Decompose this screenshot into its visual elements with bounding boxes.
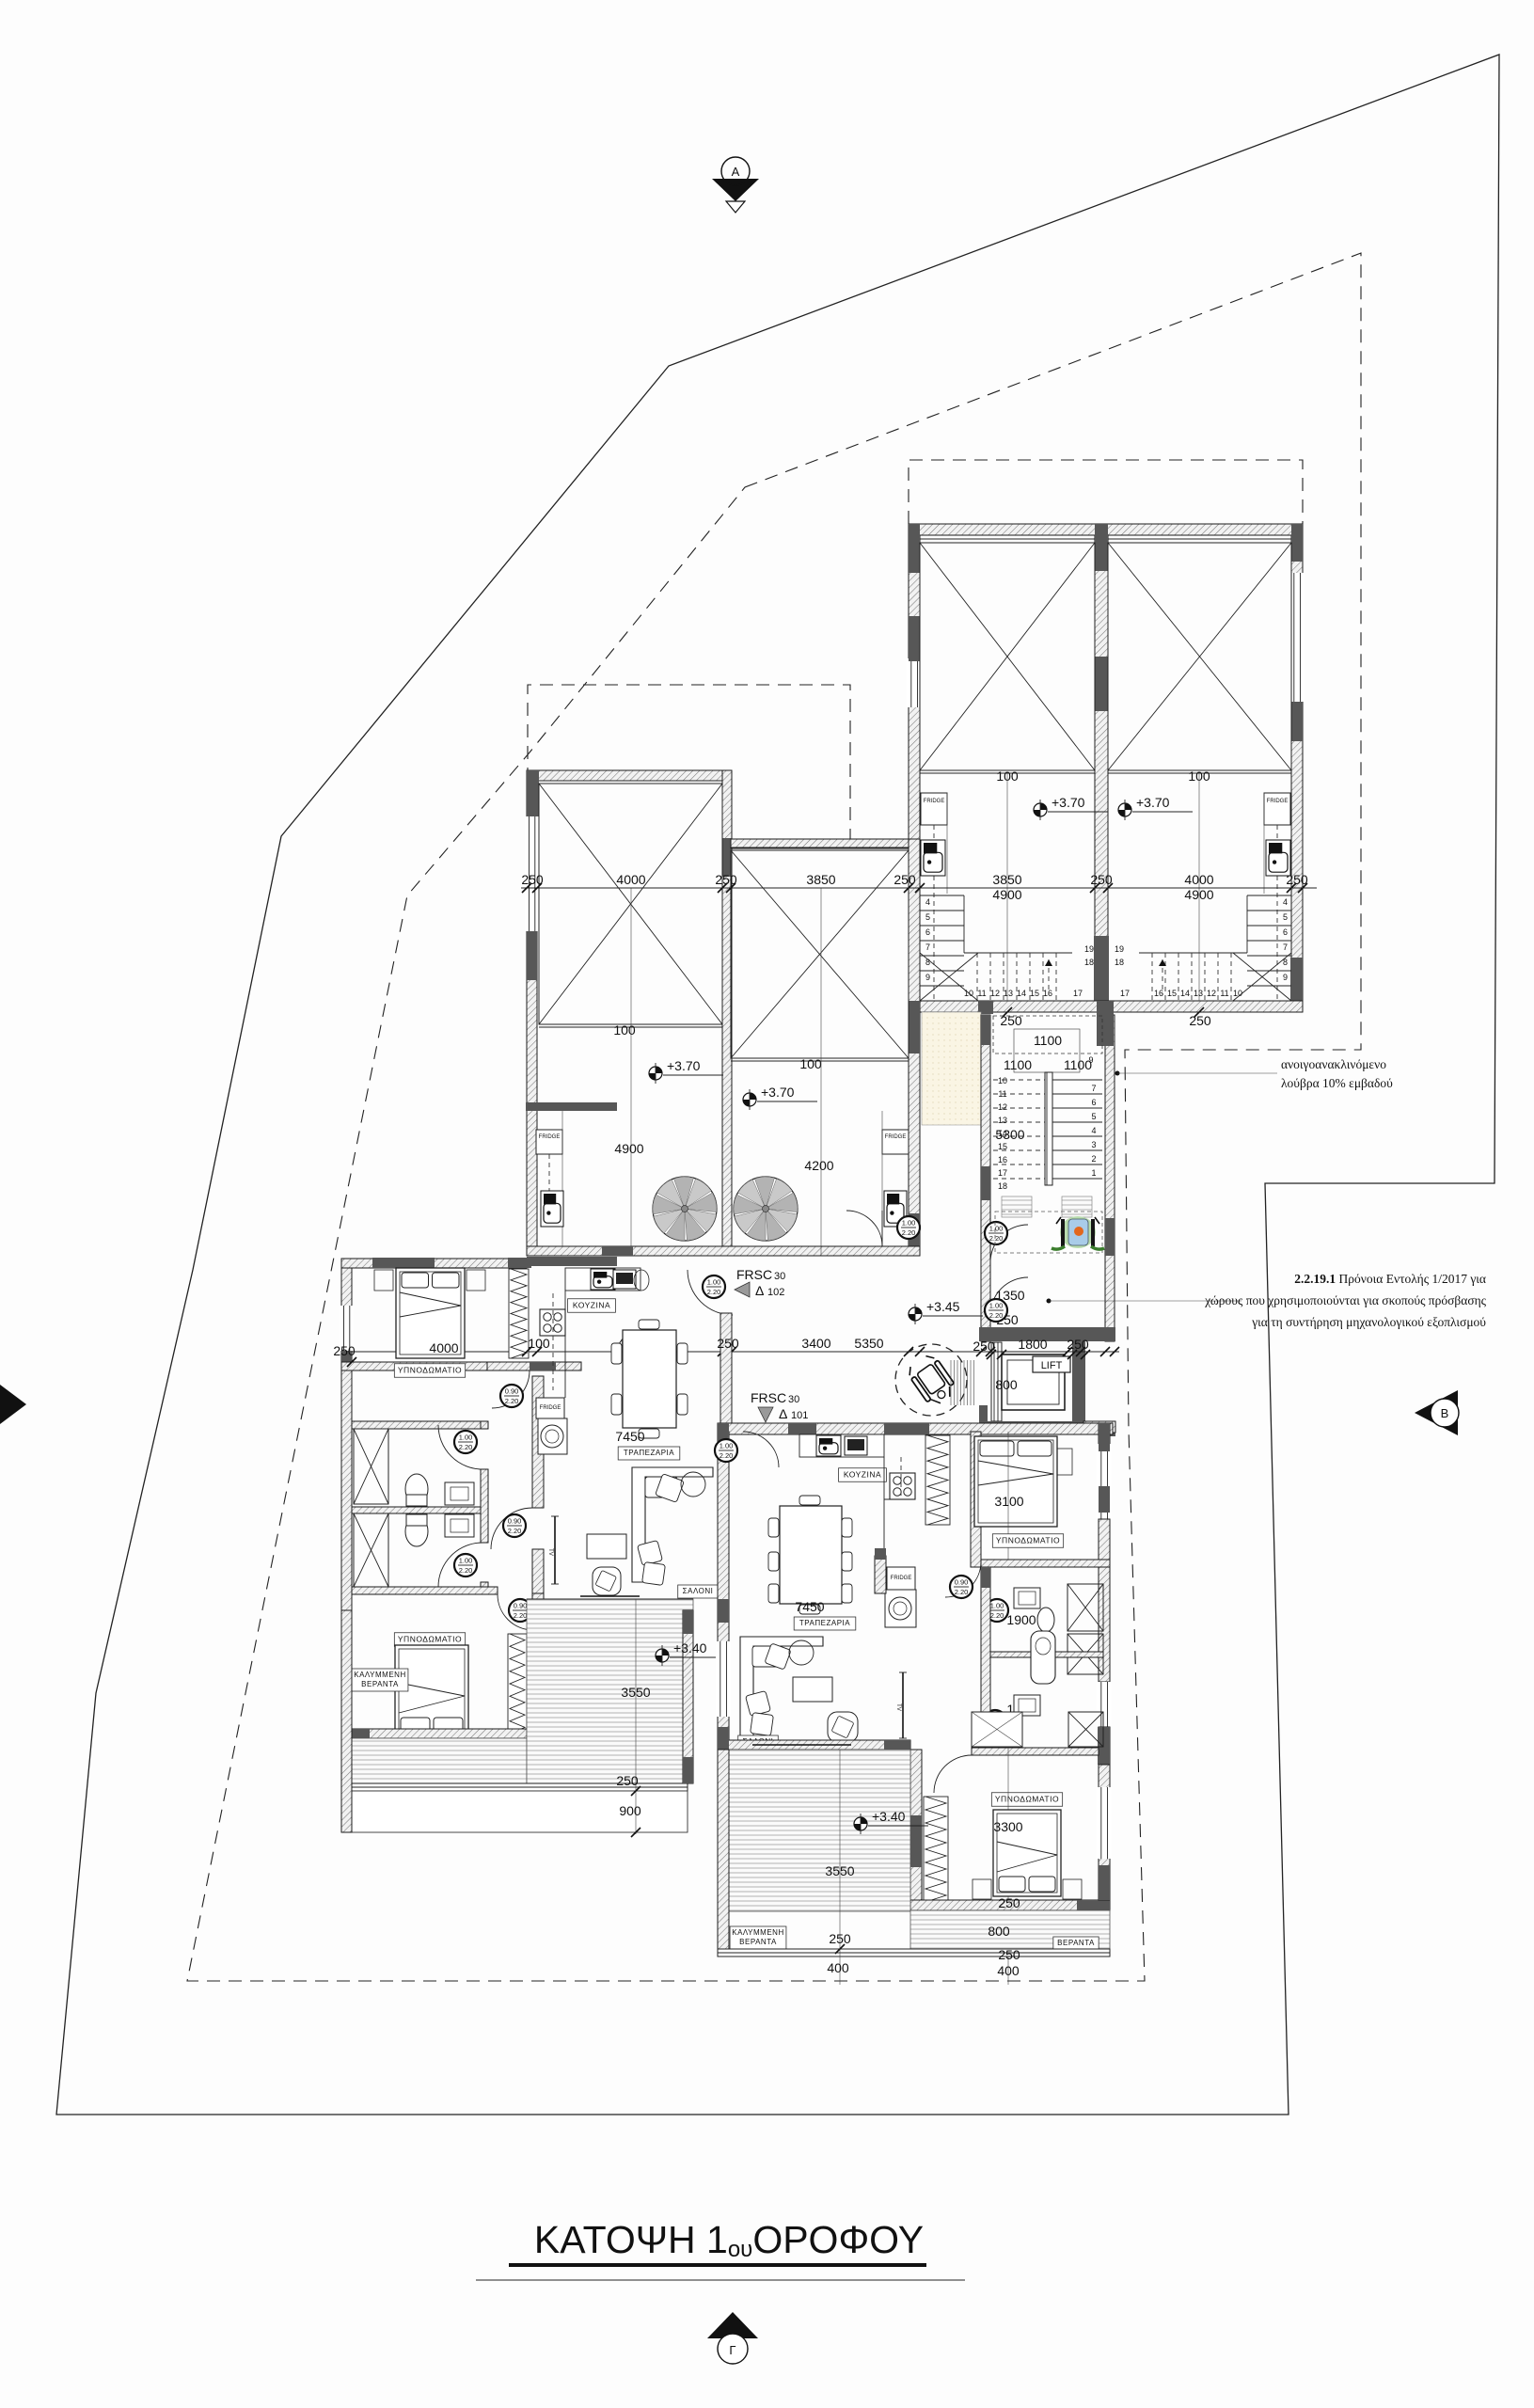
svg-text:15: 15 — [998, 1142, 1007, 1151]
svg-text:4: 4 — [1283, 897, 1288, 907]
svg-text:3: 3 — [1091, 1140, 1096, 1149]
svg-text:6: 6 — [1091, 1098, 1096, 1107]
svg-text:900: 900 — [619, 1803, 641, 1818]
svg-text:7450: 7450 — [795, 1599, 824, 1614]
svg-text:1.00: 1.00 — [990, 1602, 1004, 1610]
svg-text:+3.45: +3.45 — [926, 1299, 960, 1314]
svg-text:250: 250 — [1090, 872, 1113, 887]
svg-text:5300: 5300 — [995, 1127, 1024, 1142]
svg-text:7: 7 — [1091, 1084, 1096, 1093]
svg-text:2.20: 2.20 — [459, 1566, 473, 1575]
svg-text:ΥΠΝΟΔΩΜΑΤΙΟ: ΥΠΝΟΔΩΜΑΤΙΟ — [398, 1365, 462, 1374]
svg-text:4200: 4200 — [804, 1158, 833, 1173]
svg-text:FRIDGE: FRIDGE — [885, 1134, 907, 1140]
svg-text:Δ: Δ — [779, 1406, 787, 1421]
svg-text:100: 100 — [613, 1022, 636, 1038]
svg-text:250: 250 — [717, 1336, 739, 1351]
svg-text:ΚΟΥΖΙΝΑ: ΚΟΥΖΙΝΑ — [844, 1469, 881, 1479]
svg-text:0.90: 0.90 — [514, 1602, 528, 1610]
svg-text:250: 250 — [894, 872, 916, 887]
svg-text:ΥΠΝΟΔΩΜΑΤΙΟ: ΥΠΝΟΔΩΜΑΤΙΟ — [995, 1794, 1059, 1803]
svg-text:FRIDGE: FRIDGE — [1267, 799, 1289, 804]
svg-text:λούβρα 10% εμβαδού: λούβρα 10% εμβαδού — [1281, 1076, 1393, 1090]
svg-text:30: 30 — [774, 1271, 785, 1282]
svg-text:16: 16 — [1043, 989, 1052, 998]
svg-text:A: A — [732, 165, 740, 179]
svg-text:FRSC: FRSC — [751, 1390, 786, 1405]
svg-text:1100: 1100 — [1034, 1033, 1062, 1048]
svg-text:2.20: 2.20 — [902, 1228, 916, 1237]
svg-text:Δ: Δ — [755, 1283, 764, 1298]
svg-text:1100: 1100 — [1004, 1057, 1032, 1072]
svg-text:12: 12 — [998, 1102, 1007, 1112]
svg-text:17: 17 — [998, 1168, 1007, 1178]
svg-text:9: 9 — [1088, 1055, 1093, 1065]
svg-text:250: 250 — [715, 872, 737, 887]
svg-text:4: 4 — [1091, 1126, 1096, 1135]
svg-text:2.20: 2.20 — [990, 1611, 1004, 1620]
svg-text:800: 800 — [995, 1377, 1018, 1392]
svg-text:100: 100 — [528, 1336, 550, 1351]
svg-text:+3.70: +3.70 — [761, 1085, 795, 1100]
svg-text:2: 2 — [1091, 1154, 1096, 1164]
svg-text:4000: 4000 — [1184, 872, 1213, 887]
svg-text:2.20: 2.20 — [459, 1443, 473, 1451]
svg-text:ΚΟΥΖΙΝΑ: ΚΟΥΖΙΝΑ — [573, 1300, 610, 1309]
svg-text:LIFT: LIFT — [1041, 1360, 1063, 1371]
svg-text:5: 5 — [1283, 912, 1288, 922]
svg-text:17: 17 — [1073, 989, 1083, 998]
svg-text:100: 100 — [799, 1056, 822, 1071]
svg-text:4900: 4900 — [992, 887, 1021, 902]
svg-text:Γ: Γ — [729, 2343, 735, 2357]
svg-text:11: 11 — [977, 989, 986, 998]
svg-text:6: 6 — [1283, 927, 1288, 937]
svg-text:3850: 3850 — [806, 872, 835, 887]
svg-text:13: 13 — [998, 1116, 1007, 1125]
svg-text:5350: 5350 — [854, 1336, 883, 1351]
svg-text:14: 14 — [1017, 989, 1026, 998]
svg-text:250: 250 — [1189, 1013, 1211, 1028]
svg-text:2.20: 2.20 — [514, 1611, 528, 1620]
svg-text:ΒΕΡΑΝΤΑ: ΒΕΡΑΝΤΑ — [361, 1680, 399, 1688]
svg-text:11: 11 — [1220, 989, 1228, 998]
svg-text:2.20: 2.20 — [505, 1397, 519, 1405]
svg-text:3550: 3550 — [825, 1863, 854, 1878]
svg-text:17: 17 — [1120, 989, 1130, 998]
svg-text:FRIDGE: FRIDGE — [924, 799, 945, 804]
svg-text:1350: 1350 — [995, 1288, 1024, 1303]
svg-text:ΣΑΛΟΝΙ: ΣΑΛΟΝΙ — [683, 1587, 714, 1595]
svg-text:TV: TV — [895, 1703, 901, 1711]
svg-text:1: 1 — [1091, 1168, 1096, 1178]
svg-text:ΒΕΡΑΝΤΑ: ΒΕΡΑΝΤΑ — [1057, 1939, 1095, 1947]
svg-text:250: 250 — [616, 1773, 639, 1788]
svg-text:ΥΠΝΟΔΩΜΑΤΙΟ: ΥΠΝΟΔΩΜΑΤΙΟ — [398, 1634, 462, 1643]
svg-text:1.00: 1.00 — [459, 1557, 473, 1565]
svg-text:+3.70: +3.70 — [1136, 795, 1170, 810]
svg-text:ΥΠΝΟΔΩΜΑΤΙΟ: ΥΠΝΟΔΩΜΑΤΙΟ — [996, 1535, 1060, 1545]
svg-text:800: 800 — [988, 1924, 1010, 1939]
svg-text:2.20: 2.20 — [508, 1527, 522, 1535]
svg-text:3850: 3850 — [992, 872, 1021, 887]
svg-text:4000: 4000 — [429, 1340, 458, 1355]
svg-text:ανοιγοανακλινόμενο: ανοιγοανακλινόμενο — [1281, 1057, 1386, 1071]
svg-text:5: 5 — [1091, 1112, 1096, 1121]
svg-text:16: 16 — [1154, 989, 1163, 998]
svg-text:13: 13 — [1004, 989, 1013, 998]
svg-text:για τη συντήρηση μηχανολογικο: για τη συντήρηση μηχανολογικού εξοπλισμο… — [1251, 1315, 1486, 1329]
svg-text:0.90: 0.90 — [508, 1517, 522, 1526]
svg-text:4900: 4900 — [1184, 887, 1213, 902]
svg-text:250: 250 — [829, 1931, 851, 1946]
svg-text:7: 7 — [1283, 943, 1288, 952]
svg-text:3100: 3100 — [994, 1494, 1023, 1509]
svg-text:3550: 3550 — [621, 1685, 650, 1700]
svg-text:1.00: 1.00 — [707, 1278, 721, 1287]
svg-text:2.20: 2.20 — [989, 1234, 1004, 1243]
svg-text:3400: 3400 — [801, 1336, 830, 1351]
svg-text:7450: 7450 — [615, 1429, 644, 1444]
svg-text:5: 5 — [925, 912, 930, 922]
svg-text:19: 19 — [1115, 944, 1124, 954]
svg-text:250: 250 — [521, 872, 544, 887]
svg-text:101: 101 — [791, 1410, 808, 1421]
svg-text:30: 30 — [788, 1394, 799, 1405]
svg-text:7: 7 — [925, 943, 930, 952]
svg-text:ΤΡΑΠΕΖΑΡΙΑ: ΤΡΑΠΕΖΑΡΙΑ — [799, 1619, 850, 1627]
svg-text:B: B — [1441, 1406, 1449, 1420]
svg-text:14: 14 — [1180, 989, 1190, 998]
svg-text:12: 12 — [990, 989, 1000, 998]
svg-text:0.90: 0.90 — [505, 1387, 519, 1396]
svg-text:FRSC: FRSC — [736, 1267, 772, 1282]
svg-text:3300: 3300 — [993, 1819, 1022, 1834]
svg-text:2.20: 2.20 — [707, 1288, 721, 1296]
svg-text:250: 250 — [998, 1947, 1020, 1962]
svg-text:400: 400 — [997, 1963, 1020, 1978]
svg-text:1800: 1800 — [1018, 1337, 1047, 1352]
svg-text:1.00: 1.00 — [989, 1225, 1004, 1233]
svg-text:χώρους που χρησιμοποιούνται γι: χώρους που χρησιμοποιούνται για σκοπούς … — [1204, 1293, 1486, 1307]
svg-text:18: 18 — [1115, 958, 1124, 967]
svg-text:0.90: 0.90 — [955, 1578, 969, 1587]
svg-text:9: 9 — [1283, 973, 1288, 982]
svg-text:1.00: 1.00 — [720, 1442, 734, 1450]
svg-text:4000: 4000 — [616, 872, 645, 887]
svg-text:+3.70: +3.70 — [667, 1058, 701, 1073]
svg-text:2.20: 2.20 — [720, 1451, 734, 1460]
svg-text:2.2.19.1 Πρόνοια Εντολής 1/201: 2.2.19.1 Πρόνοια Εντολής 1/2017 για — [1294, 1272, 1486, 1286]
svg-text:ΤΡΑΠΕΖΑΡΙΑ: ΤΡΑΠΕΖΑΡΙΑ — [624, 1449, 674, 1457]
svg-text:4: 4 — [925, 897, 930, 907]
svg-text:10: 10 — [998, 1076, 1007, 1085]
svg-text:FRIDGE: FRIDGE — [891, 1576, 912, 1581]
svg-text:2.20: 2.20 — [989, 1311, 1004, 1320]
svg-text:9: 9 — [925, 973, 930, 982]
svg-text:4900: 4900 — [614, 1141, 643, 1156]
svg-text:1.00: 1.00 — [902, 1219, 916, 1228]
svg-text:TV: TV — [547, 1548, 553, 1556]
svg-text:+3.40: +3.40 — [872, 1809, 906, 1824]
svg-text:400: 400 — [827, 1960, 849, 1975]
svg-text:ΒΕΡΑΝΤΑ: ΒΕΡΑΝΤΑ — [739, 1938, 777, 1946]
svg-text:11: 11 — [998, 1089, 1006, 1099]
svg-text:+3.70: +3.70 — [1052, 795, 1085, 810]
svg-text:1.00: 1.00 — [459, 1434, 473, 1442]
svg-text:ΚΑΛΥΜΜΕΝΗ: ΚΑΛΥΜΜΕΝΗ — [732, 1928, 783, 1937]
svg-text:16: 16 — [998, 1155, 1007, 1164]
svg-text:12: 12 — [1207, 989, 1216, 998]
svg-text:1900: 1900 — [1006, 1612, 1036, 1627]
svg-text:2.20: 2.20 — [955, 1588, 969, 1596]
svg-text:102: 102 — [767, 1287, 784, 1298]
svg-text:ΚΑΛΥΜΜΕΝΗ: ΚΑΛΥΜΜΕΝΗ — [354, 1671, 405, 1679]
svg-text:FRIDGE: FRIDGE — [539, 1134, 561, 1140]
svg-text:250: 250 — [998, 1895, 1020, 1910]
svg-text:FRIDGE: FRIDGE — [540, 1405, 561, 1411]
svg-text:250: 250 — [1286, 872, 1308, 887]
svg-text:19: 19 — [1084, 944, 1094, 954]
svg-text:+3.40: +3.40 — [673, 1640, 707, 1655]
svg-text:13: 13 — [1194, 989, 1203, 998]
svg-text:18: 18 — [1084, 958, 1094, 967]
svg-text:15: 15 — [1030, 989, 1039, 998]
svg-text:6: 6 — [925, 927, 930, 937]
svg-text:15: 15 — [1167, 989, 1177, 998]
svg-text:250: 250 — [333, 1343, 356, 1358]
svg-text:18: 18 — [998, 1181, 1007, 1191]
